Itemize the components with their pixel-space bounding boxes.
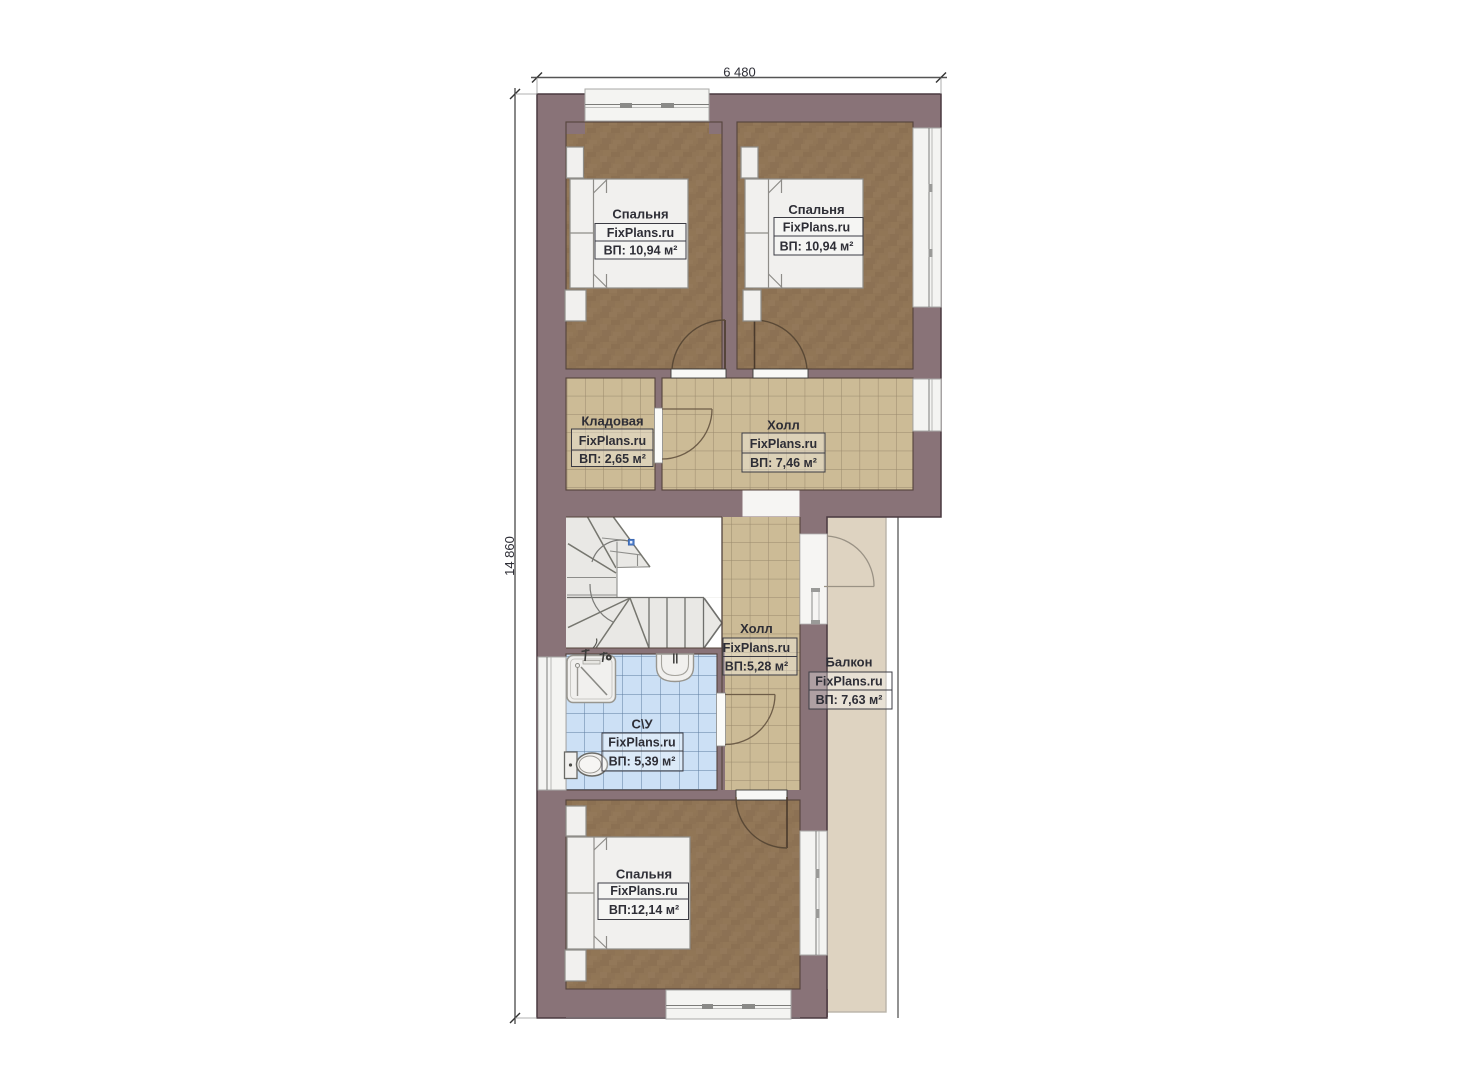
svg-text:Спальня: Спальня <box>612 207 668 222</box>
svg-text:FixPlans.ru: FixPlans.ru <box>579 434 646 448</box>
svg-text:Спальня: Спальня <box>616 867 672 882</box>
svg-text:FixPlans.ru: FixPlans.ru <box>815 675 882 689</box>
svg-text:FixPlans.ru: FixPlans.ru <box>607 226 674 240</box>
svg-text:Спальня: Спальня <box>788 202 844 217</box>
svg-text:С\У: С\У <box>631 717 653 732</box>
svg-text:FixPlans.ru: FixPlans.ru <box>750 437 817 451</box>
svg-text:ВП: 10,94 м²: ВП: 10,94 м² <box>780 240 854 254</box>
svg-text:ВП: 5,39 м²: ВП: 5,39 м² <box>609 755 676 769</box>
svg-text:FixPlans.ru: FixPlans.ru <box>608 736 675 750</box>
svg-text:Балкон: Балкон <box>826 655 873 670</box>
svg-text:FixPlans.ru: FixPlans.ru <box>610 884 677 898</box>
svg-text:ВП: 7,46 м²: ВП: 7,46 м² <box>750 456 817 470</box>
svg-text:6 480: 6 480 <box>723 64 756 79</box>
svg-text:ВП: 7,63 м²: ВП: 7,63 м² <box>816 693 883 707</box>
svg-text:ВП:5,28 м²: ВП:5,28 м² <box>725 660 788 674</box>
svg-text:FixPlans.ru: FixPlans.ru <box>783 221 850 235</box>
svg-text:Холл: Холл <box>767 418 800 433</box>
svg-text:Кладовая: Кладовая <box>581 414 643 429</box>
svg-text:ВП:12,14 м²: ВП:12,14 м² <box>609 903 679 917</box>
svg-text:14 860: 14 860 <box>502 536 517 576</box>
svg-text:ВП: 10,94 м²: ВП: 10,94 м² <box>604 244 678 258</box>
svg-text:Холл: Холл <box>740 621 773 636</box>
svg-text:ВП: 2,65 м²: ВП: 2,65 м² <box>579 452 646 466</box>
svg-text:FixPlans.ru: FixPlans.ru <box>723 641 790 655</box>
